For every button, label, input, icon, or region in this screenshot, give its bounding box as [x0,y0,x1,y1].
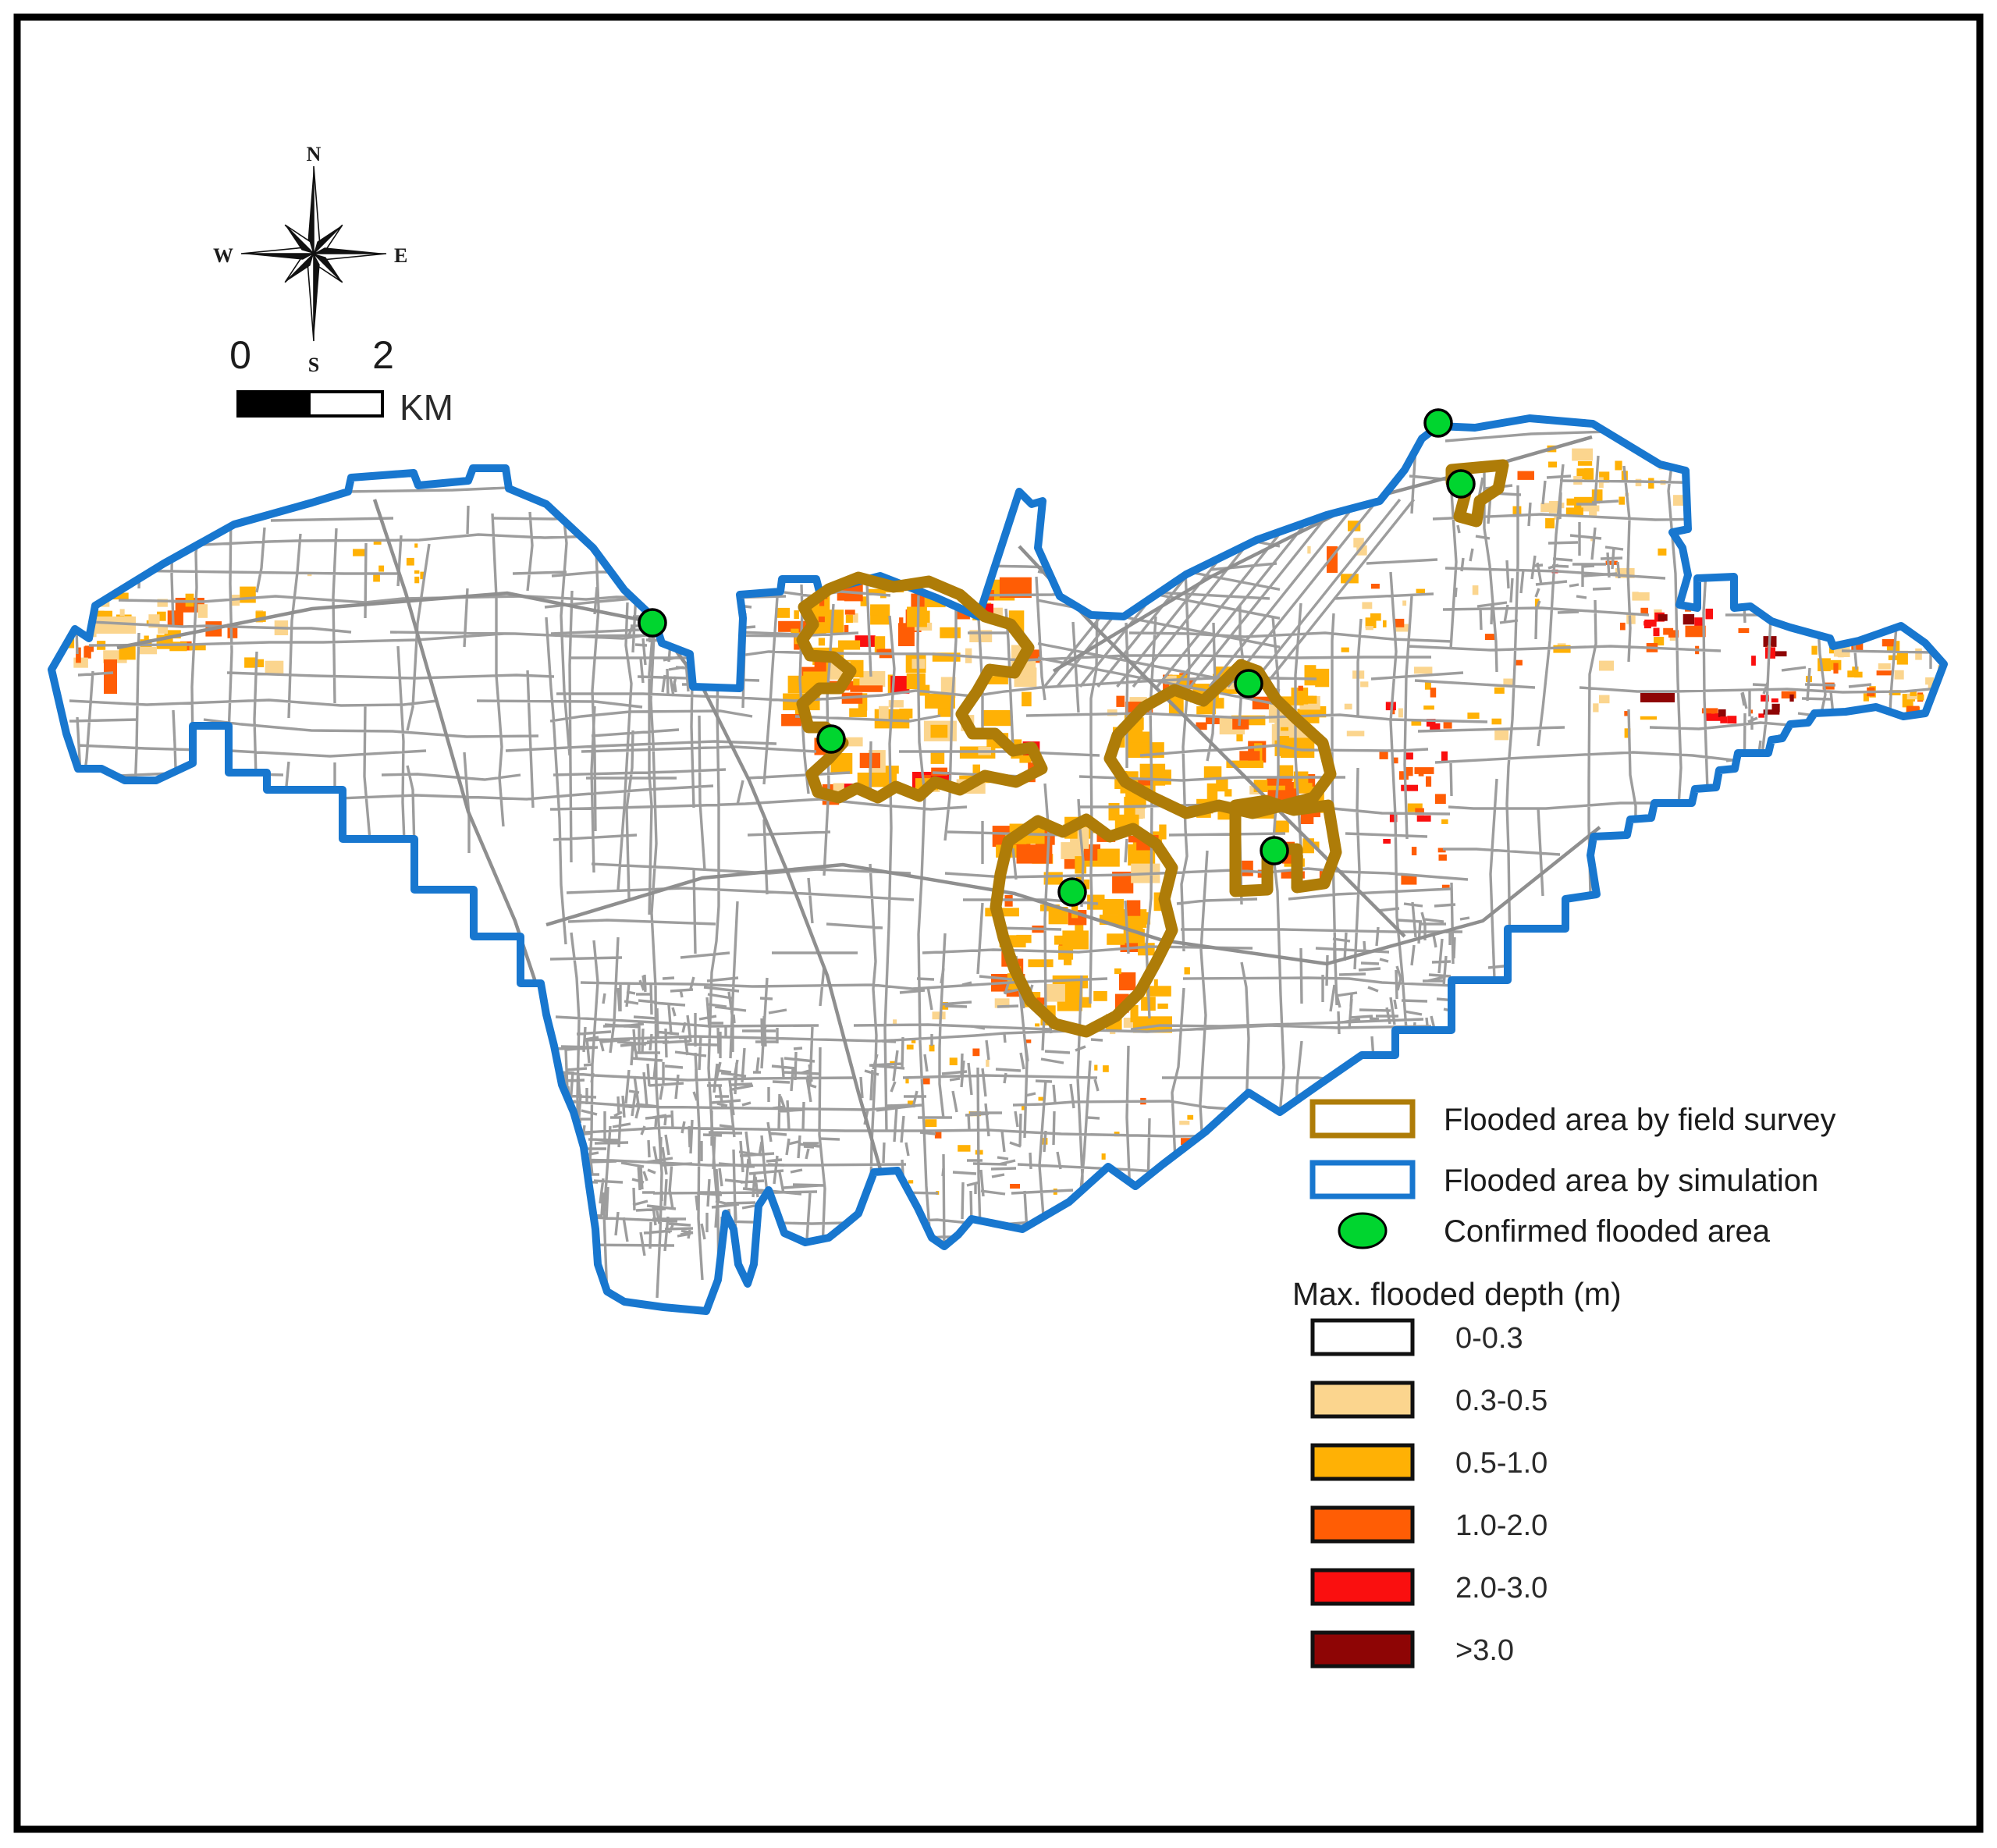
legend-depth-label: 0.5-1.0 [1455,1447,1547,1480]
legend-depth-label: 1.0-2.0 [1455,1509,1547,1542]
legend-depth-label: 2.0-3.0 [1455,1572,1547,1605]
legend-swatch-field-survey [1313,1102,1412,1135]
legend-label-confirmed: Confirmed flooded area [1444,1214,1771,1249]
confirmed-flood-point [1235,670,1262,697]
confirmed-flood-point [1261,837,1288,864]
confirmed-flood-point [1448,471,1474,497]
confirmed-flood-point [639,609,666,636]
legend-confirmed-point-icon [1339,1214,1386,1248]
legend-depth-swatch [1313,1508,1412,1541]
compass-east-label: E [394,244,407,267]
scale-bar-filled-segment [238,392,311,416]
legend-depth-label: >3.0 [1455,1634,1514,1667]
scale-unit-label: KM [400,387,453,428]
legend-depth-swatch [1313,1633,1412,1666]
legend-depth-swatch [1313,1383,1412,1416]
legend-depth-label: 0-0.3 [1455,1322,1523,1355]
legend-depth-swatch [1313,1320,1412,1354]
scale-start-label: 0 [229,333,251,377]
compass-north-label: N [307,143,322,165]
compass-west-label: W [213,244,233,267]
legend-label-field-survey: Flooded area by field survey [1444,1103,1836,1137]
compass-south-label: S [308,354,319,376]
legend-depth-title: Max. flooded depth (m) [1292,1276,1622,1312]
flood-map-figure: N E S W 0 2 KM Flooded area by field sur… [0,0,1997,1848]
legend-depth-swatch [1313,1570,1412,1604]
legend-label-simulation: Flooded area by simulation [1444,1164,1818,1198]
legend-depth-label: 0.3-0.5 [1455,1384,1547,1417]
legend-swatch-simulation [1313,1163,1412,1196]
legend-depth-swatch [1313,1445,1412,1479]
confirmed-flood-point [1059,879,1086,905]
confirmed-flood-point [818,726,844,752]
scale-end-label: 2 [372,333,394,377]
confirmed-flood-point [1425,410,1452,436]
